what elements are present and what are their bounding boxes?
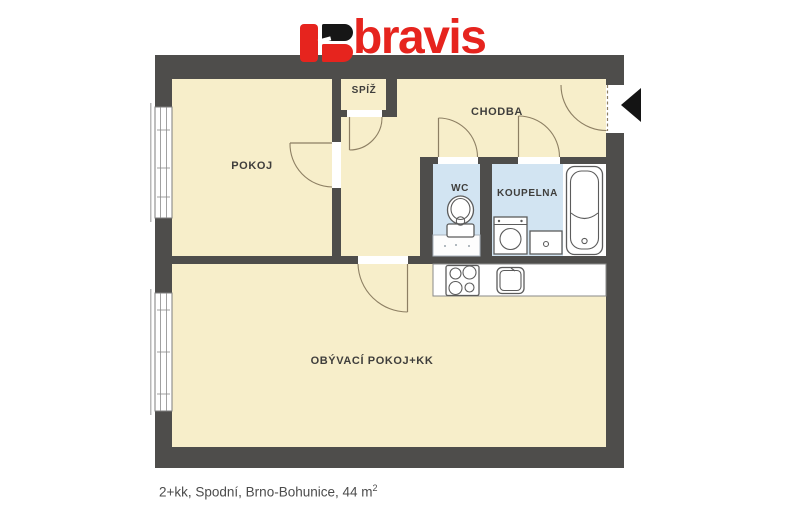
wall-bottom [155,447,624,468]
window-living-room [150,289,172,415]
floorplan-drawing: POKOJ SPÍŽ CHODBA WC KOUPELNA OBÝVACÍ PO… [0,0,800,531]
bathroom-sink [530,231,562,254]
room-label-wc: WC [451,183,469,194]
wall-wc-koupelna-divider [480,157,492,256]
logo-bar-shape [300,24,318,62]
koupelna-door-opening [518,157,560,164]
listing-caption-superscript: 2 [373,483,378,493]
installation-shaft [433,235,480,256]
bathtub [567,167,603,255]
room-label-chodba: CHODBA [471,106,523,118]
window-pokoj [150,103,172,222]
washing-machine [494,217,527,254]
living-room-door-opening [358,256,408,264]
logo-bottom-bowl-shape [322,44,353,62]
room-label-spiz: SPÍŽ [352,83,377,96]
room-label-pokoj: POKOJ [231,160,273,172]
pokoj-door-opening [332,142,341,188]
room-label-koupelna: KOUPELNA [497,188,558,199]
stove [446,266,479,296]
kitchen-sink [497,268,524,294]
listing-caption-text: 2+kk, Spodní, Brno-Bohunice, 44 m [159,485,373,500]
wall-spiz-right [386,55,397,117]
room-label-obyvaci-pokoj: OBÝVACÍ POKOJ+KK [311,354,434,367]
bravis-logo-wordmark: bravis [353,18,485,58]
entrance-opening [606,85,624,133]
spiz-door-opening [347,110,382,117]
wc-door-opening [438,157,478,164]
toilet [447,196,474,237]
listing-caption: 2+kk, Spodní, Brno-Bohunice, 44 m2 [159,483,378,500]
floorplan-page: bravis [0,0,800,531]
wall-wc-left [420,157,433,256]
